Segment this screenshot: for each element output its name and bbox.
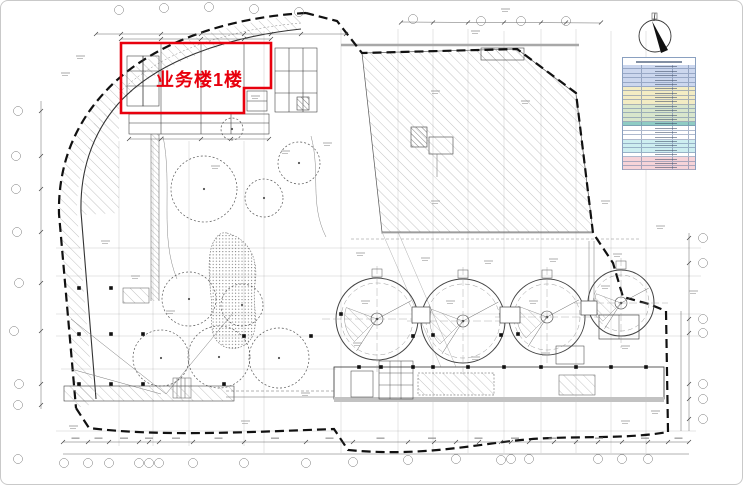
axis-bubble: [699, 259, 708, 268]
dim-tick: [599, 21, 603, 25]
axis-bubble: [699, 380, 708, 389]
column-dot: [379, 365, 383, 369]
axis-bubble: [699, 415, 708, 424]
column-dot: [109, 286, 113, 290]
dim-figure: [549, 438, 557, 439]
tank-connector: [500, 307, 520, 323]
dim-tick: [431, 21, 435, 25]
dim-figure: [511, 438, 519, 439]
column-dot: [77, 382, 81, 386]
axis-bubble: [477, 17, 486, 26]
tank-connector: [412, 307, 430, 323]
tree-center: [298, 162, 300, 164]
column-dot: [644, 365, 648, 369]
table-title: [623, 58, 695, 65]
axis-bubble: [105, 459, 114, 468]
axis-bubble: [14, 107, 23, 116]
axis-bubble: [10, 327, 19, 336]
dim-figure: [95, 438, 103, 439]
axis-bubble: [14, 401, 23, 410]
axis-bubble: [644, 455, 653, 464]
tree-center: [241, 304, 243, 306]
tree-center: [278, 357, 280, 359]
column-dot: [109, 332, 113, 336]
tank-radial: [547, 300, 579, 317]
dim-figure: [595, 438, 603, 439]
column-dot: [242, 334, 246, 338]
axis-bubble: [155, 459, 164, 468]
axis-bubble: [13, 228, 22, 237]
north-compass-icon: [639, 13, 671, 53]
axis-bubble: [349, 458, 358, 467]
axis-bubble: [12, 185, 21, 194]
column-dot: [77, 332, 81, 336]
dim-figure: [326, 438, 334, 439]
axis-bubble: [517, 17, 526, 26]
axis-bubble: [12, 152, 21, 161]
column-dot: [309, 334, 313, 338]
dim-figure: [675, 438, 683, 439]
dim-figure: [72, 438, 80, 439]
axis-bubble: [699, 234, 708, 243]
column-dot: [431, 365, 435, 369]
planting-mound: [209, 233, 256, 349]
axis-bubble: [60, 459, 69, 468]
axis-bubble: [15, 279, 24, 288]
tree-center: [203, 188, 205, 190]
column-dot: [499, 333, 503, 337]
column-dot: [609, 365, 613, 369]
column-dot: [141, 332, 145, 336]
dim-figure: [172, 438, 180, 439]
tree-center: [218, 356, 220, 358]
tank-radial: [377, 301, 411, 319]
column-dot: [339, 312, 343, 316]
axis-bubble: [507, 455, 516, 464]
column-dot: [431, 333, 435, 337]
axis-bubble: [594, 455, 603, 464]
tree-center: [160, 357, 162, 359]
axis-bubble: [699, 329, 708, 338]
dim-figure: [641, 438, 649, 439]
column-dot: [502, 365, 506, 369]
column-dot: [141, 382, 145, 386]
area-statistics-table: [622, 57, 696, 170]
table-row-pink: [623, 166, 695, 170]
tank-connector: [581, 301, 597, 315]
axis-bubble: [84, 459, 93, 468]
column-dot: [574, 365, 578, 369]
tank-radial: [621, 288, 649, 303]
axis-bubble: [452, 455, 461, 464]
tank-radial: [463, 302, 498, 321]
reserved-area-hatch: [341, 45, 641, 367]
axis-bubble: [145, 459, 154, 468]
axis-bubble: [404, 456, 413, 465]
column-dot: [222, 382, 226, 386]
axis-bubble: [14, 455, 23, 464]
column-dot: [411, 365, 415, 369]
column-dot: [516, 332, 520, 336]
dim-tick: [399, 21, 403, 25]
axis-bubble: [15, 380, 24, 389]
dim-figure: [428, 438, 436, 439]
axis-bubble: [699, 395, 708, 404]
dim-tick: [564, 21, 568, 25]
axis-bubble: [699, 315, 708, 324]
dim-figure: [377, 438, 385, 439]
highlighted-building: 业务楼1楼: [121, 43, 317, 134]
axis-bubble: [302, 459, 311, 468]
dim-figure: [215, 438, 223, 439]
column-dot: [539, 365, 543, 369]
dim-figure: [271, 438, 279, 439]
axis-bubble: [250, 5, 259, 14]
tree-center: [263, 197, 265, 199]
axis-bubble: [525, 455, 534, 464]
column-dot: [411, 334, 415, 338]
axis-bubble: [205, 3, 214, 12]
tank-wedge: [517, 306, 547, 338]
highlight-label: 业务楼1楼: [156, 69, 243, 90]
dim-figure: [475, 438, 483, 439]
axis-bubble: [240, 459, 249, 468]
axis-bubble: [160, 4, 169, 13]
tree-center: [231, 128, 233, 130]
axis-bubble: [189, 459, 198, 468]
tree-center: [188, 298, 190, 300]
dim-figure: [145, 438, 153, 439]
column-dot: [357, 365, 361, 369]
axis-bubble: [497, 456, 506, 465]
tank-wedge: [430, 309, 463, 344]
column-dot: [77, 286, 81, 290]
column-dot: [109, 382, 113, 386]
drawing-canvas[interactable]: 业务楼1楼: [0, 0, 743, 485]
dim-figure: [120, 438, 128, 439]
axis-bubble: [618, 455, 627, 464]
axis-bubble: [135, 459, 144, 468]
axis-bubble: [115, 6, 124, 15]
tank-wedge: [345, 308, 377, 342]
column-dot: [466, 365, 470, 369]
axis-bubble: [562, 17, 571, 26]
